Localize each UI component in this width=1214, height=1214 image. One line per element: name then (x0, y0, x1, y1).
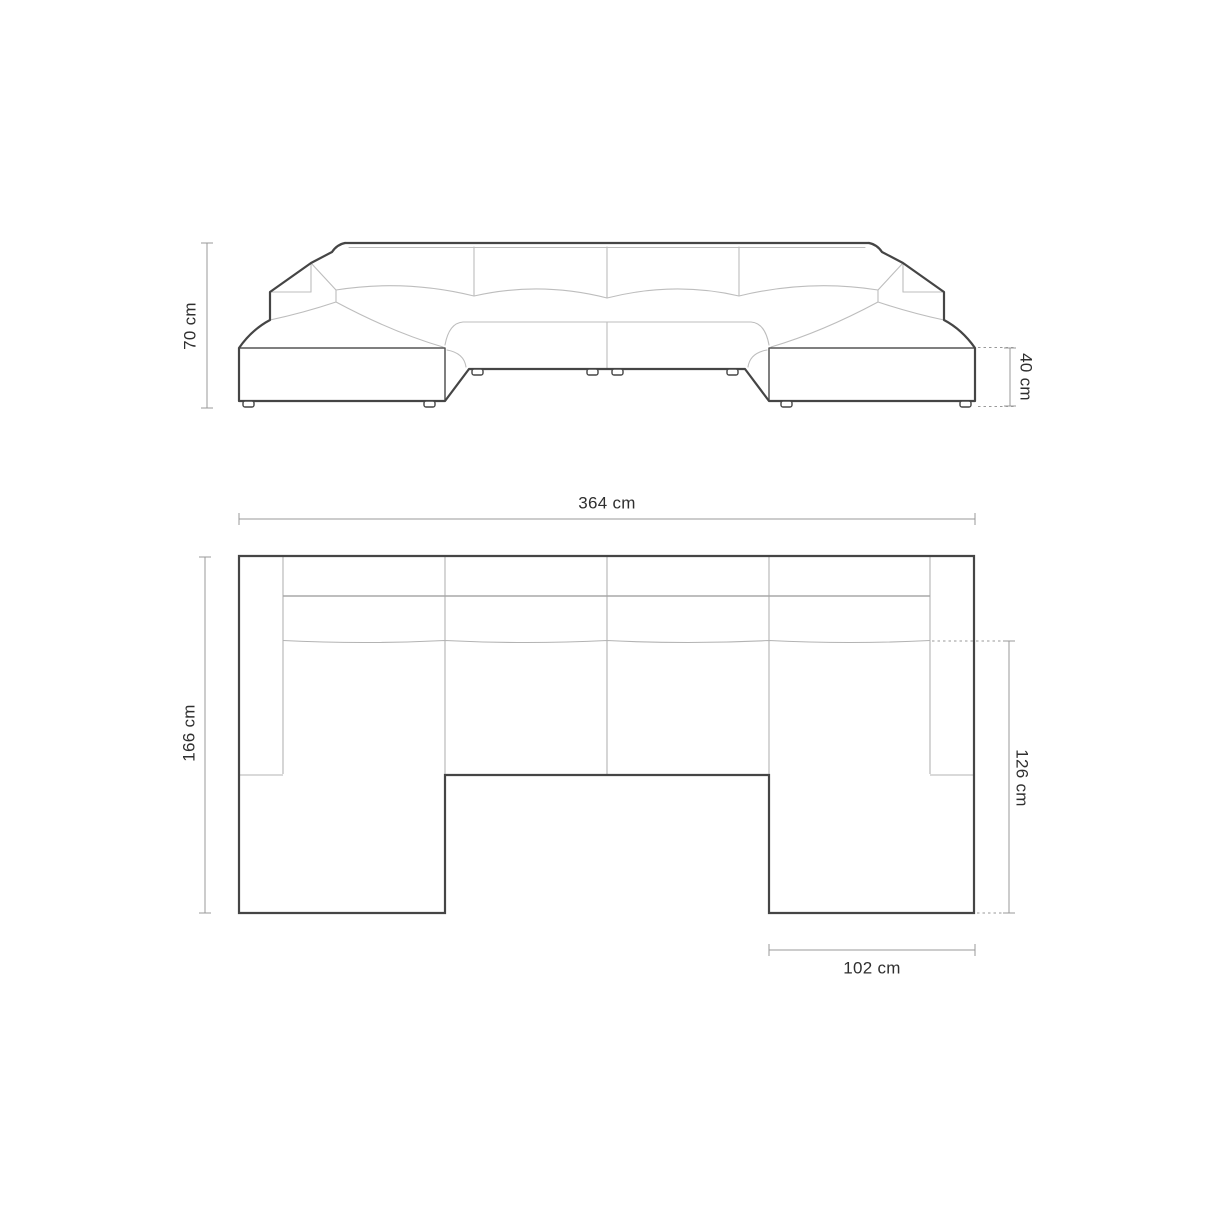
dim-40cm-label: 40 cm (1018, 353, 1035, 401)
dim-102cm-line (769, 944, 975, 956)
dim-166cm-line (199, 557, 211, 913)
front-seam-lines (270, 247, 944, 369)
dim-70cm-line (201, 243, 213, 408)
front-elevation-drawing (239, 243, 975, 407)
plan-seam-lines (239, 557, 974, 775)
dim-102cm-label: 102 cm (843, 960, 901, 977)
sofa-dimensions-diagram: 70 cm 40 cm 364 cm 166 cm 126 cm 102 cm (0, 0, 1214, 1214)
dim-364cm-label: 364 cm (578, 495, 636, 512)
dim-70cm-label: 70 cm (182, 302, 199, 350)
diagram-canvas (0, 0, 1214, 1214)
plan-view-drawing (239, 556, 974, 913)
dim-166cm-label: 166 cm (181, 704, 198, 762)
dim-126cm-label: 126 cm (1014, 749, 1031, 807)
dim-40cm-line (978, 348, 1016, 407)
dim-364cm-line (239, 513, 975, 525)
